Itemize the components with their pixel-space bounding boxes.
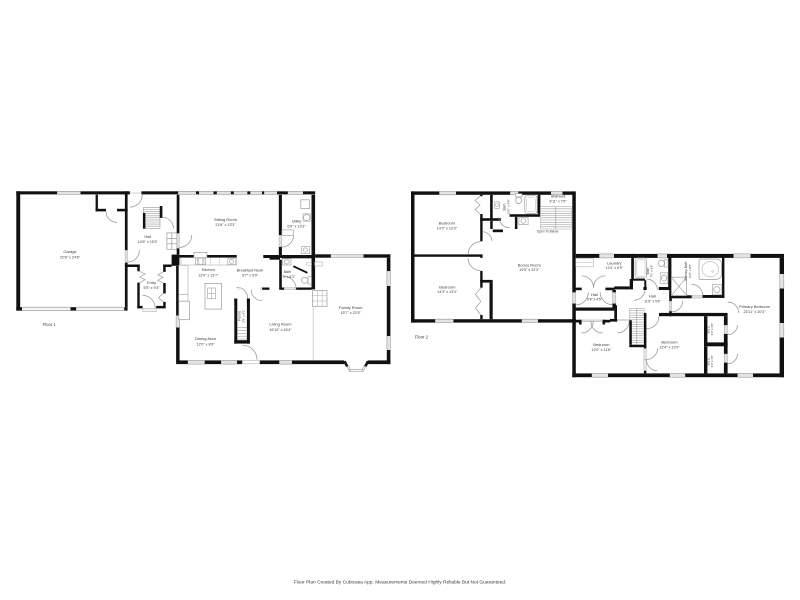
svg-text:12'0" x 11'6": 12'0" x 11'6" [591,348,612,352]
svg-text:12'4" x 12'9": 12'4" x 12'9" [659,346,680,350]
svg-text:Hall: Hall [649,294,656,299]
svg-text:Bedroom: Bedroom [439,221,456,226]
svg-text:12'4" x 6'9": 12'4" x 6'9" [606,266,624,270]
svg-text:Utility: Utility [292,218,302,223]
svg-text:10'0" x 4'8": 10'0" x 4'8" [507,199,511,214]
svg-text:5'5" x 9'4": 5'5" x 9'4" [144,286,161,290]
svg-text:Entry: Entry [147,280,156,285]
svg-text:16'10" x 15'4": 16'10" x 15'4" [269,328,292,332]
svg-text:Laundry: Laundry [607,261,621,266]
svg-text:6'9" x 6'3": 6'9" x 6'3" [280,275,296,279]
svg-text:Primary Bedroom: Primary Bedroom [739,304,771,309]
svg-text:Open To Below: Open To Below [537,230,559,234]
svg-text:Sitting Room: Sitting Room [214,217,238,222]
svg-text:21'8" x 13'3": 21'8" x 13'3" [215,223,236,227]
svg-text:Hall: Hall [144,234,151,239]
svg-text:Bath: Bath [284,270,291,274]
svg-text:Dining Area: Dining Area [195,336,216,341]
svg-text:Floor 2: Floor 2 [415,335,429,340]
svg-text:4'2" x 6'0": 4'2" x 6'0" [710,323,714,336]
svg-text:Floor 1: Floor 1 [43,322,57,327]
svg-text:Family Room: Family Room [339,305,363,310]
svg-text:10'6" x 15'3": 10'6" x 15'3" [138,240,159,244]
svg-text:Bedroom: Bedroom [661,340,678,345]
svg-text:23'11" x 20'3": 23'11" x 20'3" [744,310,767,314]
svg-text:Living Room: Living Room [269,322,292,327]
svg-text:6'9" x 13'3": 6'9" x 13'3" [287,224,306,228]
svg-text:4'3" x 6'9": 4'3" x 6'9" [710,355,714,368]
svg-text:7'0" x 8'5": 7'0" x 8'5" [650,264,654,277]
svg-text:Hall: Hall [591,292,598,297]
svg-text:Stairwell: Stairwell [551,194,566,199]
svg-text:9'7" x 9'9": 9'7" x 9'9" [242,274,259,278]
svg-text:14'3" x 13'3": 14'3" x 13'3" [437,227,458,231]
svg-text:9'8" x 4'5": 9'8" x 4'5" [587,298,603,302]
svg-text:Bonus Room: Bonus Room [518,262,542,267]
svg-text:Breakfast Nook: Breakfast Nook [237,267,264,272]
svg-text:19'5" x 22'3": 19'5" x 22'3" [519,268,540,272]
svg-text:Kitchen: Kitchen [202,267,215,272]
svg-text:11'6" x 9'6": 11'6" x 9'6" [644,300,661,304]
svg-text:Floor Plan Created By Cubicasa: Floor Plan Created By Cubicasa App. Meas… [294,580,507,586]
svg-text:12'0" x 13'7": 12'0" x 13'7" [198,273,219,277]
svg-text:22'8" x 24'6": 22'8" x 24'6" [60,256,81,260]
svg-text:15'7" x 22'5": 15'7" x 22'5" [341,311,362,315]
svg-text:Bedroom: Bedroom [593,342,610,347]
svg-text:2'8" x 6'1": 2'8" x 6'1" [242,309,246,323]
svg-text:11'0" x 8'5": 11'0" x 8'5" [688,264,692,279]
svg-text:Garage: Garage [63,249,77,254]
svg-text:6'11" x 7'5": 6'11" x 7'5" [550,199,568,203]
svg-text:14'3" x 13'1": 14'3" x 13'1" [437,290,458,294]
svg-text:12'0" x 8'9": 12'0" x 8'9" [196,342,215,346]
svg-text:Bedroom: Bedroom [439,284,456,289]
